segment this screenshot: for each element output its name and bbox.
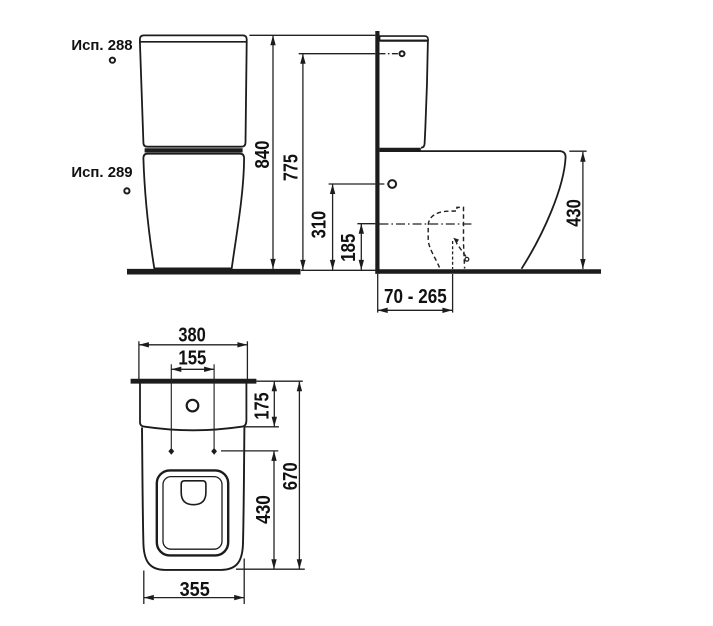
svg-text:175: 175 [252, 392, 274, 419]
svg-text:775: 775 [281, 154, 303, 181]
svg-text:Исп. 288: Исп. 288 [71, 38, 132, 54]
svg-text:840: 840 [252, 141, 274, 169]
svg-text:185: 185 [338, 234, 360, 262]
svg-text:355: 355 [180, 579, 210, 601]
svg-text:430: 430 [253, 495, 275, 524]
svg-text:430: 430 [564, 199, 586, 227]
svg-text:155: 155 [178, 348, 206, 370]
svg-text:Исп. 289: Исп. 289 [71, 165, 132, 181]
svg-text:70 - 265: 70 - 265 [384, 286, 447, 308]
svg-text:670: 670 [280, 462, 302, 490]
svg-text:310: 310 [309, 211, 331, 239]
svg-text:380: 380 [178, 325, 205, 347]
